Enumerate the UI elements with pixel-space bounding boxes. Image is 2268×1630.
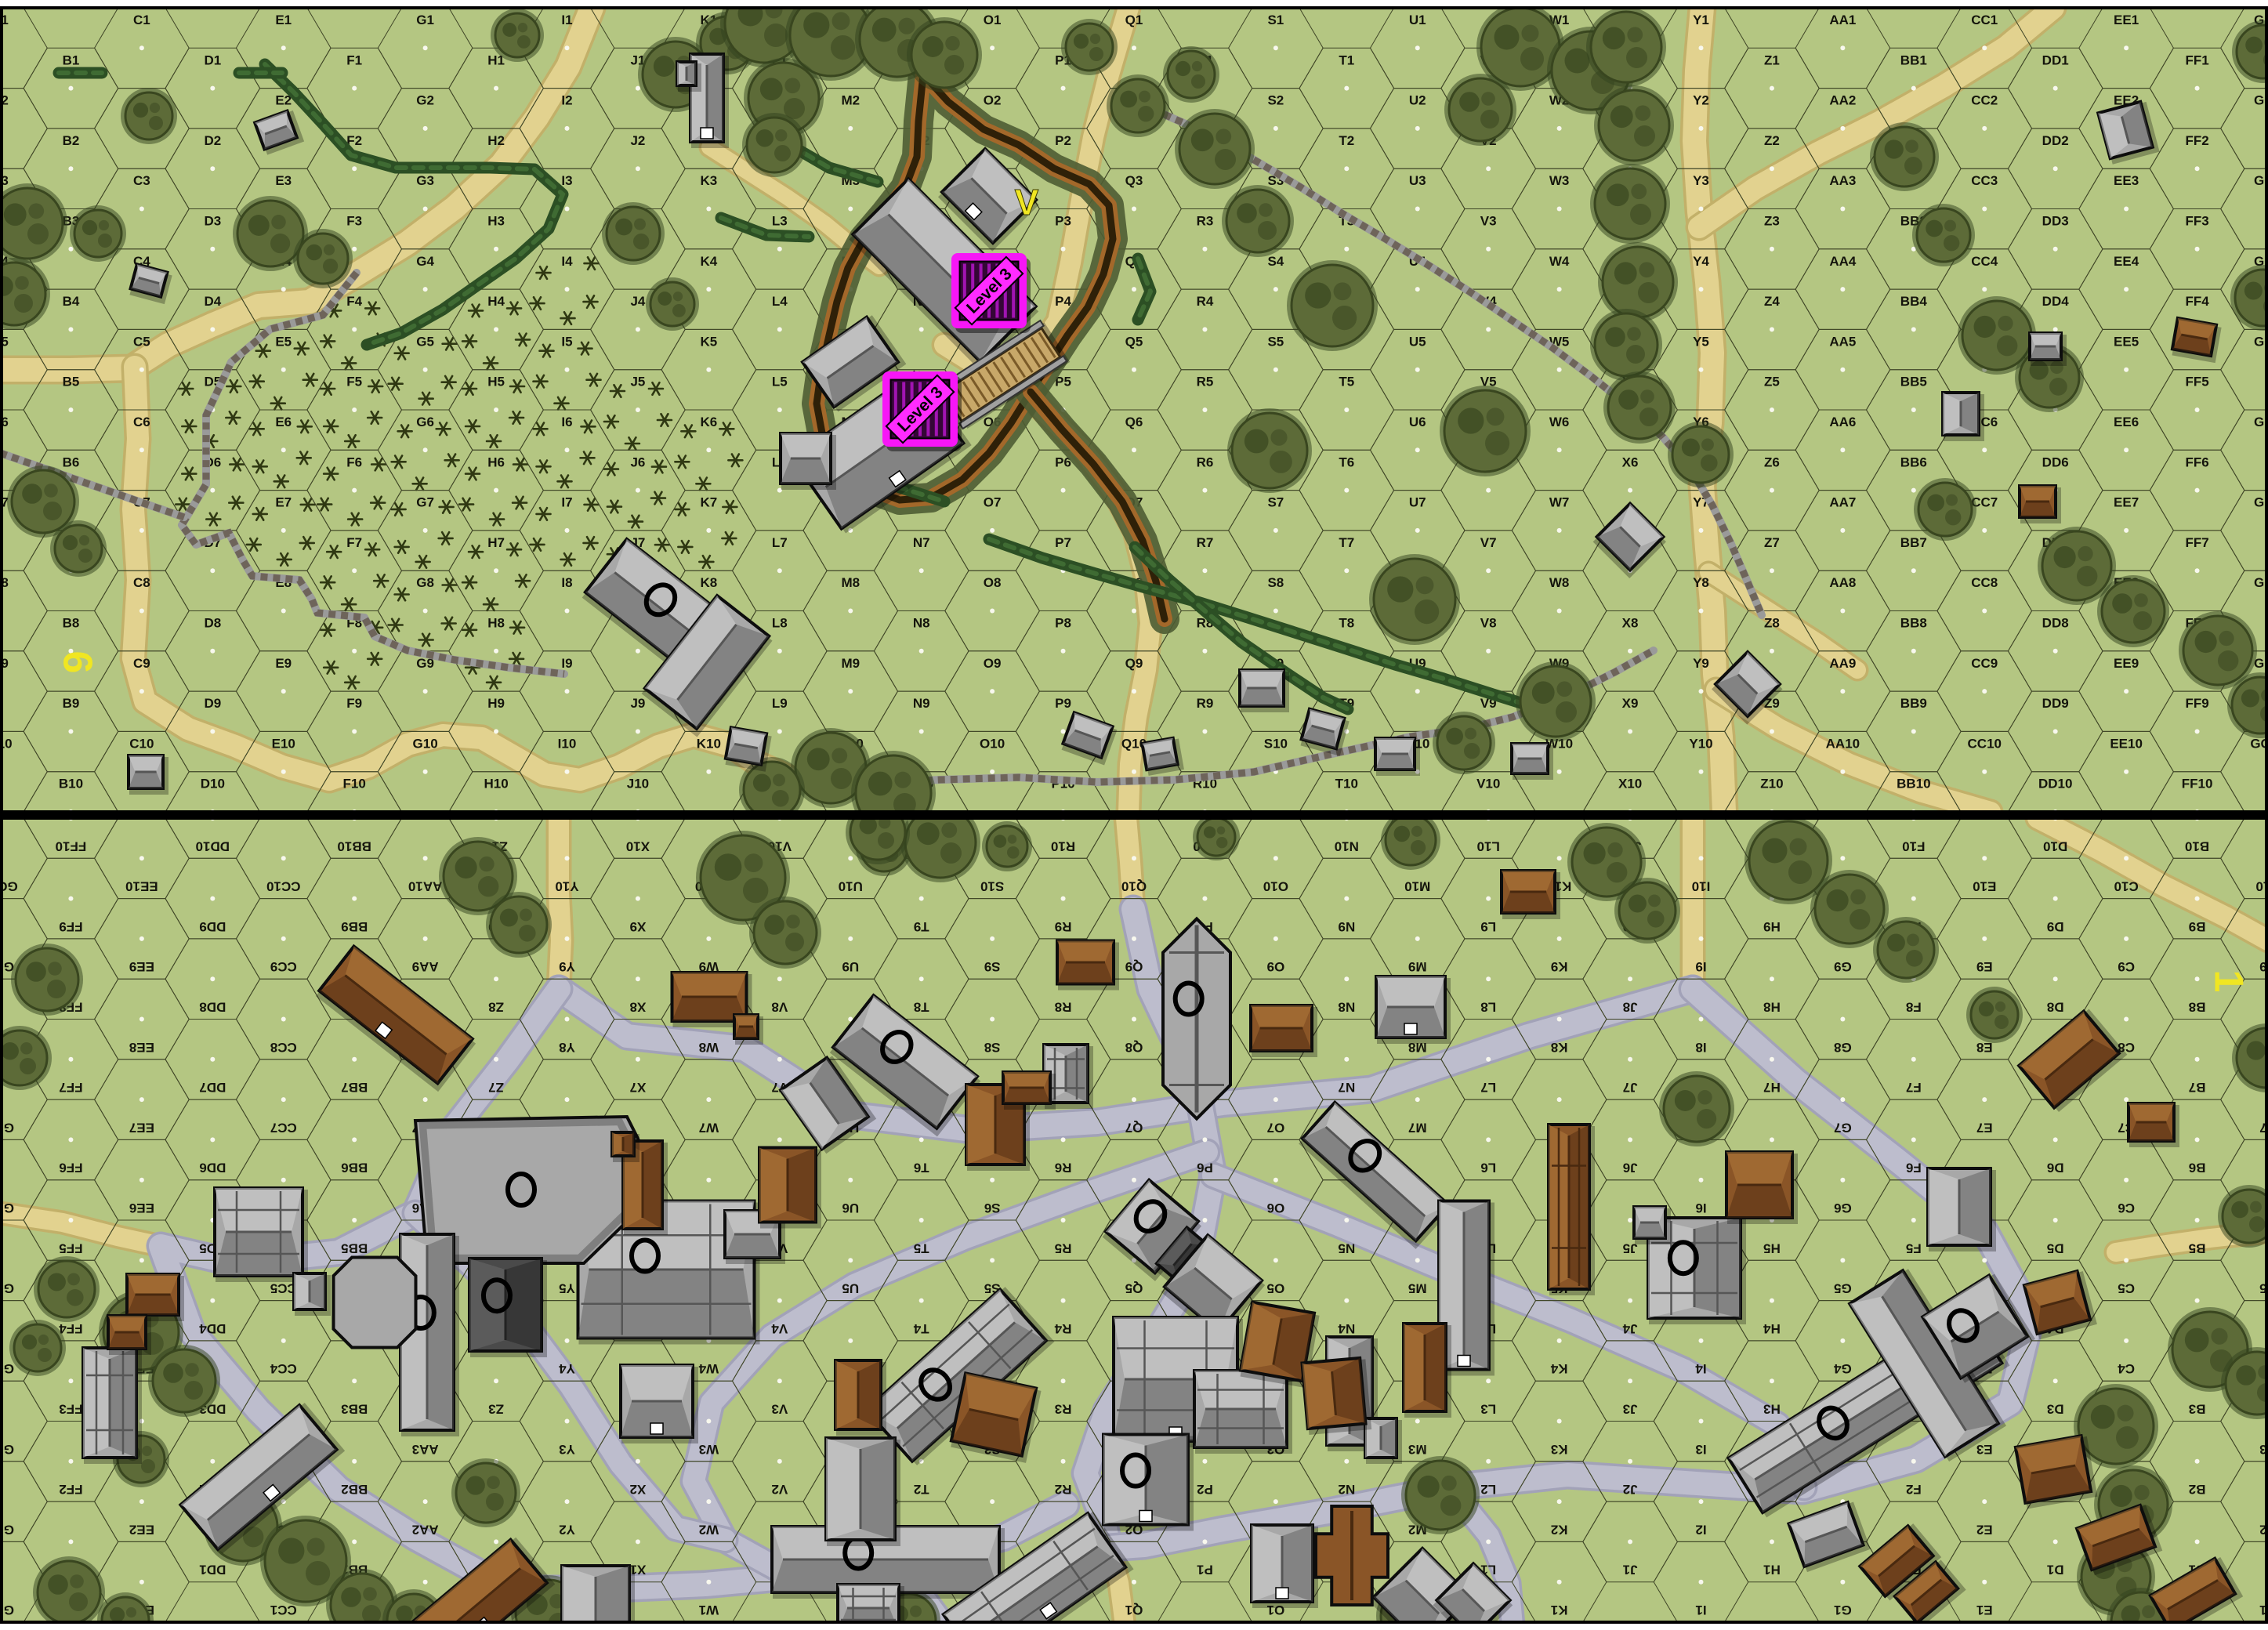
hex-center-dot xyxy=(2124,1258,2129,1262)
hex-center-dot xyxy=(990,528,995,533)
hex-center-dot xyxy=(352,327,357,331)
hex-center-dot xyxy=(1699,1580,1704,1585)
hex-center-dot xyxy=(636,649,640,654)
hex-label: P2 xyxy=(1055,133,1071,148)
hex-label: M5 xyxy=(1408,1281,1427,1296)
hex-center-dot xyxy=(706,770,711,774)
hex-label: B10 xyxy=(2185,839,2209,853)
hex-center-dot xyxy=(1628,1299,1632,1303)
hex-center-dot xyxy=(1557,1338,1562,1343)
hex-center-dot xyxy=(1132,856,1136,860)
hex-label: CC4 xyxy=(270,1361,297,1376)
hex-label: G1 xyxy=(416,13,434,27)
hex-center-dot xyxy=(777,976,782,981)
hex-center-dot xyxy=(919,1218,924,1222)
hex-center-dot xyxy=(1840,1258,1845,1262)
hex-center-dot xyxy=(565,1017,570,1022)
hex-label: DD3 xyxy=(2042,214,2069,229)
hex-label: S2 xyxy=(1267,93,1284,108)
hex-label: Z1 xyxy=(1764,53,1780,67)
hex-center-dot xyxy=(2195,1218,2200,1222)
hex-center-dot xyxy=(636,407,640,412)
hex-label: M8 xyxy=(841,575,860,590)
hex-label: L5 xyxy=(772,375,788,389)
hex-center-dot xyxy=(352,488,357,493)
hex-center-dot xyxy=(1699,1419,1704,1424)
hex-label: K5 xyxy=(701,334,718,349)
hex-center-dot xyxy=(423,936,428,941)
stone-building xyxy=(2030,333,2067,366)
hex-center-dot xyxy=(494,568,498,573)
hex-label: W7 xyxy=(1549,495,1570,510)
hex-label: Y2 xyxy=(1693,93,1709,108)
hex-center-dot xyxy=(1770,1539,1774,1544)
wood-building xyxy=(1549,1125,1595,1295)
hex-label: H7 xyxy=(1763,1080,1781,1095)
hex-label: G7 xyxy=(1834,1120,1852,1135)
board-number: 1 xyxy=(2205,970,2251,993)
hex-center-dot xyxy=(777,327,782,331)
hex-center-dot xyxy=(2195,166,2200,171)
hex-label: C6 xyxy=(133,415,150,429)
hex-center-dot xyxy=(210,568,215,573)
hex-label: FF5 xyxy=(2185,375,2208,389)
hex-label: U2 xyxy=(1409,93,1426,108)
hex-label: H5 xyxy=(1763,1241,1781,1255)
hex-label: T4 xyxy=(913,1321,929,1336)
hex-label: G3 xyxy=(416,173,434,188)
forest-clump xyxy=(1193,813,1240,860)
hex-center-dot xyxy=(1699,609,1704,614)
forest-clump xyxy=(70,205,126,262)
forest-clump xyxy=(982,821,1032,871)
hex-label: DD10 xyxy=(2038,777,2072,791)
hex-label: R3 xyxy=(1055,1402,1072,1417)
hex-center-dot xyxy=(1911,488,1916,493)
hex-center-dot xyxy=(281,287,286,292)
hex-label: G9 xyxy=(1834,959,1852,974)
hex-label: H10 xyxy=(484,777,508,791)
hex-label: N8 xyxy=(1338,1000,1355,1015)
hex-label: R5 xyxy=(1197,375,1214,389)
hex-center-dot xyxy=(1273,936,1278,941)
hex-center-dot xyxy=(1486,166,1491,171)
hex-label: J6 xyxy=(630,455,645,469)
hex-label: BB6 xyxy=(341,1161,368,1175)
hex-label: BB5 xyxy=(341,1241,368,1255)
hex-label: W3 xyxy=(699,1442,719,1457)
hex-label: Q10 xyxy=(1121,879,1147,894)
hex-center-dot xyxy=(494,86,498,91)
hex-center-dot xyxy=(2195,86,2200,91)
hex-label: F10 xyxy=(1902,839,1925,853)
hex-label: E1 xyxy=(1976,1603,1993,1617)
hex-label: I8 xyxy=(561,575,572,590)
hex-label: H5 xyxy=(487,375,505,389)
hex-center-dot xyxy=(1982,447,1987,452)
hex-label: Y2 xyxy=(559,1522,575,1537)
hex-center-dot xyxy=(2124,528,2129,533)
hex-center-dot xyxy=(636,896,640,901)
hex-label: P4 xyxy=(1055,294,1071,309)
hex-center-dot xyxy=(565,528,570,533)
hex-center-dot xyxy=(565,770,570,774)
hex-center-dot xyxy=(565,287,570,292)
hex-center-dot xyxy=(352,1539,357,1544)
hex-label: FF2 xyxy=(2185,133,2208,148)
hex-label: I8 xyxy=(1695,1040,1706,1055)
hex-label: L6 xyxy=(1480,1161,1496,1175)
hex-label: S4 xyxy=(1267,254,1284,269)
hex-label: S10 xyxy=(1264,736,1288,751)
hex-label: U5 xyxy=(842,1281,859,1296)
hex-center-dot xyxy=(1557,447,1562,452)
hex-center-dot xyxy=(1982,1580,1987,1585)
hex-center-dot xyxy=(1061,649,1066,654)
hex-label: Q7 xyxy=(1125,1120,1143,1135)
hex-center-dot xyxy=(494,1057,498,1062)
hex-center-dot xyxy=(2124,770,2129,774)
hex-center-dot xyxy=(139,528,144,533)
hex-label: EE9 xyxy=(2114,656,2139,671)
hex-center-dot xyxy=(777,1299,782,1303)
hex-label: H4 xyxy=(1763,1321,1781,1336)
hex-center-dot xyxy=(139,45,144,50)
hex-center-dot xyxy=(210,166,215,171)
hex-label: U7 xyxy=(1409,495,1426,510)
hex-label: EE10 xyxy=(2110,736,2143,751)
hex-center-dot xyxy=(68,247,73,252)
hex-label: P7 xyxy=(1055,535,1071,550)
hex-label: R9 xyxy=(1055,919,1072,934)
hex-center-dot xyxy=(1344,896,1349,901)
hex-center-dot xyxy=(565,447,570,452)
hex-center-dot xyxy=(352,1378,357,1383)
hex-label: J2 xyxy=(630,133,645,148)
hex-label: E7 xyxy=(275,495,292,510)
hex-center-dot xyxy=(2053,976,2058,981)
hex-center-dot xyxy=(352,407,357,412)
hex-label: T10 xyxy=(1335,777,1358,791)
hex-label: V8 xyxy=(1480,616,1497,631)
hex-label: N5 xyxy=(1338,1241,1355,1255)
hex-label: Q8 xyxy=(1125,1040,1143,1055)
hex-center-dot xyxy=(1202,1137,1207,1142)
hex-center-dot xyxy=(210,896,215,901)
hex-center-dot xyxy=(1840,1338,1845,1343)
hex-center-dot xyxy=(1486,896,1491,901)
hex-center-dot xyxy=(565,856,570,860)
forest-clump xyxy=(451,1458,520,1527)
hex-center-dot xyxy=(636,327,640,331)
hex-label: H3 xyxy=(1763,1402,1781,1417)
hex-label: B8 xyxy=(63,616,80,631)
stone-building xyxy=(1928,1168,1996,1251)
hex-center-dot xyxy=(423,689,428,694)
hex-center-dot xyxy=(1770,1057,1774,1062)
stone-building xyxy=(294,1273,331,1316)
hex-label: DD9 xyxy=(199,919,226,934)
hex-center-dot xyxy=(210,649,215,654)
hex-label: Z8 xyxy=(488,1000,504,1015)
hex-label: K2 xyxy=(1551,1522,1568,1537)
hex-center-dot xyxy=(636,488,640,493)
hex-label: EE2 xyxy=(129,1522,154,1537)
hex-label: AA9 xyxy=(1829,656,1856,671)
hex-center-dot xyxy=(919,976,924,981)
board-number: 6 xyxy=(54,651,100,674)
hex-center-dot xyxy=(565,1338,570,1343)
stone-building xyxy=(677,62,701,92)
hex-label: BB9 xyxy=(341,919,368,934)
hex-label: M10 xyxy=(1404,879,1430,894)
hex-center-dot xyxy=(1982,856,1987,860)
hex-center-dot xyxy=(1982,609,1987,614)
forest-clump xyxy=(742,113,806,177)
hex-center-dot xyxy=(1699,1499,1704,1504)
hex-center-dot xyxy=(1628,1218,1632,1222)
hex-center-dot xyxy=(565,936,570,941)
stone-building xyxy=(1376,976,1451,1044)
hex-center-dot xyxy=(1628,1057,1632,1062)
hex-center-dot xyxy=(1840,1017,1845,1022)
hex-label: P9 xyxy=(1055,696,1071,711)
hex-center-dot xyxy=(1557,528,1562,533)
hex-center-dot xyxy=(1415,1258,1420,1262)
wood-building xyxy=(1302,1357,1371,1435)
hex-center-dot xyxy=(2124,207,2129,212)
hex-center-dot xyxy=(990,45,995,50)
hex-label: Y5 xyxy=(1693,334,1709,349)
hex-center-dot xyxy=(2053,729,2058,733)
hex-center-dot xyxy=(68,896,73,901)
hex-center-dot xyxy=(281,1178,286,1183)
hex-center-dot xyxy=(1344,1299,1349,1303)
hex-label: S10 xyxy=(980,879,1004,894)
hex-center-dot xyxy=(1061,247,1066,252)
hex-label: L7 xyxy=(1480,1080,1496,1095)
hex-label: G5 xyxy=(1834,1281,1852,1296)
hex-label: Y3 xyxy=(559,1442,575,1457)
hex-label: F3 xyxy=(346,214,362,229)
hex-center-dot xyxy=(777,649,782,654)
hex-label: R6 xyxy=(1197,455,1214,469)
hex-label: G8 xyxy=(1834,1040,1852,1055)
hex-center-dot xyxy=(68,327,73,331)
hex-center-dot xyxy=(1061,896,1066,901)
hex-label: I9 xyxy=(561,656,572,671)
hex-center-dot xyxy=(1628,729,1632,733)
stone-building xyxy=(1240,670,1289,712)
hex-label: FF3 xyxy=(2185,214,2208,229)
hex-label: H2 xyxy=(487,133,505,148)
hex-label: K8 xyxy=(701,575,718,590)
forest-clump xyxy=(33,1556,105,1628)
stone-building xyxy=(1634,1207,1671,1244)
hex-label: F2 xyxy=(1906,1482,1922,1497)
hex-label: I2 xyxy=(561,93,572,108)
hex-center-dot xyxy=(1770,247,1774,252)
hex-center-dot xyxy=(494,729,498,733)
hex-center-dot xyxy=(1840,207,1845,212)
hex-label: I1 xyxy=(561,13,572,27)
hex-label: X6 xyxy=(1622,455,1639,469)
hex-label: I3 xyxy=(1695,1442,1706,1457)
hex-center-dot xyxy=(1273,1499,1278,1504)
hex-center-dot xyxy=(1699,1338,1704,1343)
hex-center-dot xyxy=(1840,447,1845,452)
hex-center-dot xyxy=(2053,1137,2058,1142)
hex-label: FF6 xyxy=(59,1161,82,1175)
hex-center-dot xyxy=(68,86,73,91)
hex-label: I4 xyxy=(561,254,573,269)
hex-label: H8 xyxy=(487,616,505,631)
hex-label: H4 xyxy=(487,294,505,309)
hex-label: I10 xyxy=(558,736,577,751)
hex-label: W2 xyxy=(699,1522,719,1537)
hex-center-dot xyxy=(423,1499,428,1504)
hex-center-dot xyxy=(210,729,215,733)
hex-label: D3 xyxy=(2047,1402,2064,1417)
hex-center-dot xyxy=(2195,407,2200,412)
hex-center-dot xyxy=(210,488,215,493)
hex-label: AA3 xyxy=(1829,173,1856,188)
hex-label: L7 xyxy=(772,535,788,550)
hex-label: H3 xyxy=(487,214,505,229)
hex-label: X8 xyxy=(1622,616,1639,631)
hex-label: N7 xyxy=(1338,1080,1355,1095)
hex-center-dot xyxy=(139,609,144,614)
hex-label: T5 xyxy=(914,1241,929,1255)
hex-center-dot xyxy=(2053,896,2058,901)
hex-label: R8 xyxy=(1055,1000,1072,1015)
stone-building xyxy=(1163,919,1230,1119)
hex-label: P8 xyxy=(1055,616,1071,631)
wood-building xyxy=(2016,1435,2097,1509)
hex-label: O9 xyxy=(984,656,1002,671)
forest-clump xyxy=(486,892,552,958)
hex-center-dot xyxy=(281,770,286,774)
hex-label: C4 xyxy=(2118,1361,2135,1376)
hex-center-dot xyxy=(636,1539,640,1544)
forest-clump xyxy=(1440,386,1531,476)
hex-center-dot xyxy=(139,1499,144,1504)
hex-label: K9 xyxy=(1551,959,1568,974)
stone-building xyxy=(1142,737,1184,777)
level-counter[interactable]: Level 3 xyxy=(882,371,962,451)
stone-building xyxy=(1512,744,1553,780)
hex-center-dot xyxy=(423,856,428,860)
forest-clump xyxy=(1369,554,1460,645)
hex-center-dot xyxy=(352,1137,357,1142)
hex-label: G6 xyxy=(416,415,434,429)
hex-label: FF10 xyxy=(56,839,87,853)
hex-center-dot xyxy=(423,45,428,50)
hex-label: EE8 xyxy=(129,1040,154,1055)
hex-center-dot xyxy=(1202,488,1207,493)
hex-center-dot xyxy=(2124,287,2129,292)
hex-label: F6 xyxy=(1906,1161,1922,1175)
hex-label: N9 xyxy=(1338,919,1355,934)
hex-label: CC8 xyxy=(1971,575,1998,590)
hex-label: O1 xyxy=(984,13,1002,27)
hex-center-dot xyxy=(1770,1299,1774,1303)
hex-label: W1 xyxy=(699,1603,719,1617)
hex-center-dot xyxy=(2195,1299,2200,1303)
hex-label: O6 xyxy=(1267,1201,1285,1215)
hex-label: EE7 xyxy=(2114,495,2139,510)
stone-building xyxy=(129,755,168,795)
hex-label: O7 xyxy=(1267,1120,1285,1135)
wood-building xyxy=(2129,1103,2179,1147)
hex-center-dot xyxy=(1132,689,1136,694)
hex-center-dot xyxy=(1486,1539,1491,1544)
hex-center-dot xyxy=(1415,936,1420,941)
hex-center-dot xyxy=(1415,1097,1420,1102)
hex-center-dot xyxy=(1202,729,1207,733)
hex-label: G4 xyxy=(1833,1361,1851,1376)
hex-label: Q9 xyxy=(1125,656,1143,671)
hex-center-dot xyxy=(919,896,924,901)
hex-label: T6 xyxy=(1339,455,1354,469)
hex-label: F10 xyxy=(343,777,366,791)
hex-center-dot xyxy=(2195,1057,2200,1062)
hex-label: FF9 xyxy=(2185,696,2208,711)
hex-center-dot xyxy=(1132,447,1136,452)
hex-label: D8 xyxy=(2047,1000,2064,1015)
hex-center-dot xyxy=(2195,1459,2200,1464)
hex-center-dot xyxy=(848,1258,853,1262)
hex-label: Y5 xyxy=(559,1281,575,1296)
hex-label: U1 xyxy=(1409,13,1426,27)
hex-label: G5 xyxy=(416,334,434,349)
hex-label: DD10 xyxy=(196,839,230,853)
hex-center-dot xyxy=(1557,1017,1562,1022)
hex-center-dot xyxy=(281,528,286,533)
hex-center-dot xyxy=(919,1137,924,1142)
hex-label: AA5 xyxy=(1829,334,1856,349)
hex-center-dot xyxy=(2124,1097,2129,1102)
hex-label: D10 xyxy=(2043,839,2067,853)
hex-label: H9 xyxy=(487,696,505,711)
hex-center-dot xyxy=(1770,568,1774,573)
hex-label: I7 xyxy=(561,495,572,510)
hex-label: G7 xyxy=(416,495,434,510)
hex-label: I1 xyxy=(1695,1603,1706,1617)
hex-center-dot xyxy=(1344,1057,1349,1062)
level-counter[interactable]: Level 3 xyxy=(951,253,1031,333)
hex-label: Y3 xyxy=(1693,173,1709,188)
forest-clump xyxy=(1603,371,1676,444)
hex-label: M7 xyxy=(1408,1120,1427,1135)
hex-center-dot xyxy=(706,207,711,212)
hex-label: I6 xyxy=(561,415,572,429)
hex-center-dot xyxy=(1699,45,1704,50)
hex-label: AA4 xyxy=(1829,254,1857,269)
hex-label: Q1 xyxy=(1125,1603,1143,1617)
hex-center-dot xyxy=(1911,649,1916,654)
hex-center-dot xyxy=(352,896,357,901)
hex-label: T2 xyxy=(914,1482,929,1497)
hex-label: L10 xyxy=(1477,839,1500,853)
hex-label: FF3 xyxy=(59,1402,82,1417)
hex-center-dot xyxy=(1628,488,1632,493)
wood-building xyxy=(2020,486,2061,523)
hex-center-dot xyxy=(1911,568,1916,573)
stone-building xyxy=(1194,1371,1292,1454)
forest-clump xyxy=(1444,74,1516,146)
hex-label: Q5 xyxy=(1125,1281,1143,1296)
